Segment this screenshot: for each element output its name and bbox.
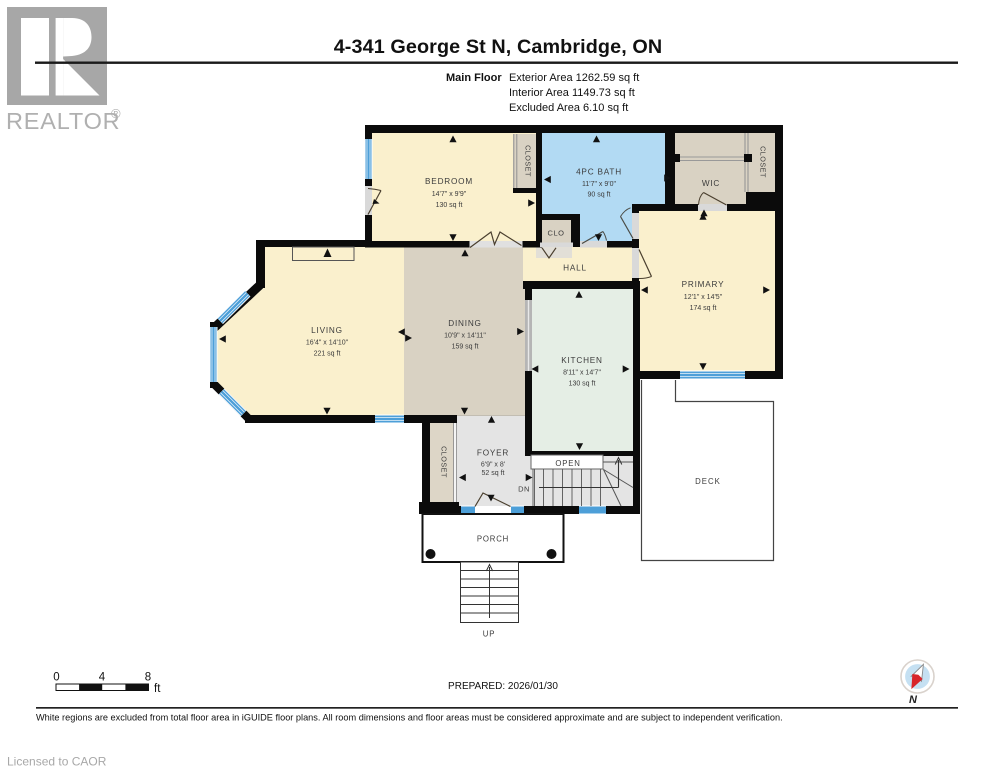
svg-text:BEDROOM: BEDROOM bbox=[425, 177, 473, 186]
svg-text:0: 0 bbox=[53, 672, 59, 684]
svg-text:HALL: HALL bbox=[563, 264, 587, 273]
svg-text:10'9" x 14'11": 10'9" x 14'11" bbox=[444, 333, 486, 340]
svg-text:174 sq ft: 174 sq ft bbox=[690, 305, 717, 312]
svg-text:CLOSET: CLOSET bbox=[759, 146, 768, 178]
svg-text:12'1" x 14'5": 12'1" x 14'5" bbox=[684, 294, 723, 301]
svg-text:ft: ft bbox=[154, 683, 161, 695]
svg-text:DN: DN bbox=[518, 485, 530, 494]
svg-text:PORCH: PORCH bbox=[477, 535, 509, 544]
svg-text:PREPARED: 2026/01/30: PREPARED: 2026/01/30 bbox=[448, 681, 558, 692]
svg-text:PRIMARY: PRIMARY bbox=[682, 280, 725, 289]
svg-text:130 sq ft: 130 sq ft bbox=[436, 202, 463, 209]
svg-text:4PC BATH: 4PC BATH bbox=[576, 168, 622, 177]
svg-text:CLOSET: CLOSET bbox=[524, 145, 533, 177]
svg-text:DINING: DINING bbox=[448, 319, 481, 328]
svg-text:LIVING: LIVING bbox=[311, 326, 343, 335]
svg-text:DECK: DECK bbox=[695, 477, 721, 486]
svg-text:REALTOR: REALTOR bbox=[6, 108, 120, 134]
svg-text:11'7" x 9'0": 11'7" x 9'0" bbox=[582, 181, 616, 188]
svg-text:CLOSET: CLOSET bbox=[440, 446, 449, 478]
svg-text:16'4" x 14'10": 16'4" x 14'10" bbox=[306, 340, 349, 347]
svg-text:CLO: CLO bbox=[548, 229, 565, 238]
svg-text:®: ® bbox=[111, 106, 121, 121]
svg-text:4: 4 bbox=[99, 672, 106, 684]
svg-text:221 sq ft: 221 sq ft bbox=[314, 351, 341, 358]
svg-text:Main Floor: Main Floor bbox=[446, 72, 502, 84]
svg-text:White regions are excluded fro: White regions are excluded from total fl… bbox=[36, 713, 783, 723]
svg-text:130 sq ft: 130 sq ft bbox=[569, 381, 596, 388]
svg-text:8: 8 bbox=[145, 672, 151, 684]
svg-text:4-341 George St N, Cambridge,: 4-341 George St N, Cambridge, ON bbox=[334, 36, 663, 58]
svg-text:Exterior Area 1262.59 sq ft: Exterior Area 1262.59 sq ft bbox=[509, 72, 639, 84]
svg-text:OPEN: OPEN bbox=[555, 459, 580, 468]
svg-text:52 sq ft: 52 sq ft bbox=[482, 470, 505, 477]
svg-text:UP: UP bbox=[483, 630, 495, 639]
svg-text:N: N bbox=[909, 694, 918, 706]
svg-text:90 sq ft: 90 sq ft bbox=[588, 192, 611, 199]
svg-text:14'7" x 9'9": 14'7" x 9'9" bbox=[432, 191, 467, 198]
svg-text:6'9" x 8': 6'9" x 8' bbox=[481, 462, 505, 469]
svg-text:Excluded Area 6.10 sq ft: Excluded Area 6.10 sq ft bbox=[509, 102, 628, 114]
svg-text:WIC: WIC bbox=[702, 179, 720, 188]
svg-text:FOYER: FOYER bbox=[477, 449, 509, 458]
svg-text:8'11" x 14'7": 8'11" x 14'7" bbox=[563, 370, 601, 377]
svg-text:Interior Area 1149.73 sq ft: Interior Area 1149.73 sq ft bbox=[509, 87, 635, 99]
svg-text:KITCHEN: KITCHEN bbox=[561, 356, 603, 365]
svg-text:159 sq ft: 159 sq ft bbox=[452, 344, 479, 351]
svg-text:Licensed to CAOR: Licensed to CAOR bbox=[7, 755, 107, 768]
